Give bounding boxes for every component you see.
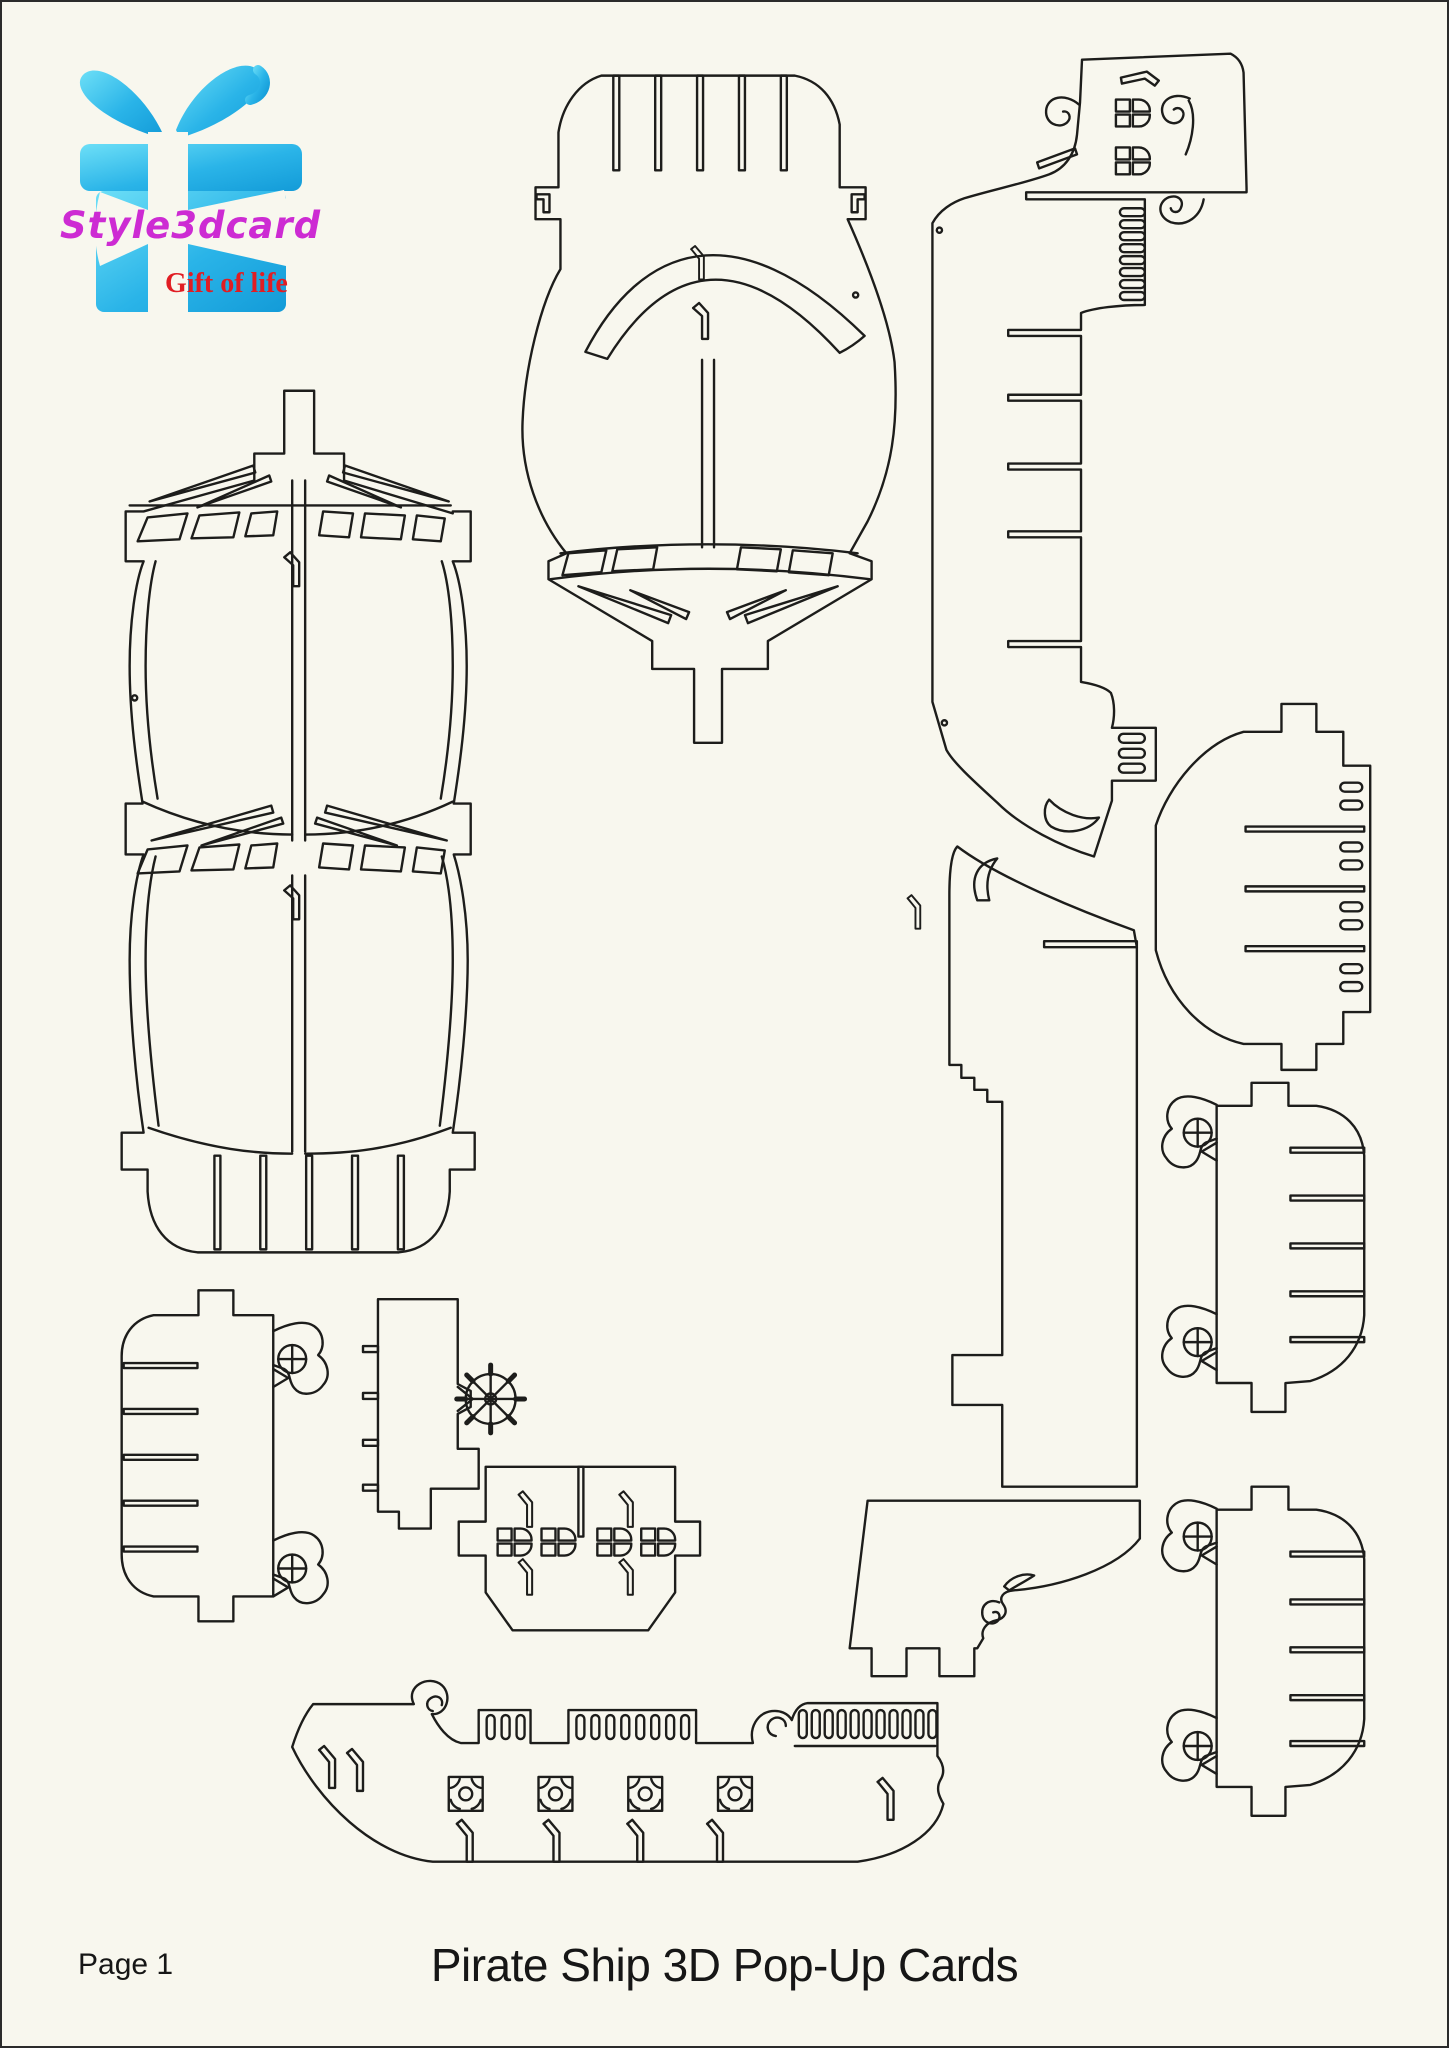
piece-stern-castle-side bbox=[932, 54, 1246, 857]
piece-gun-deck-right-upper bbox=[1162, 1083, 1364, 1412]
piece-hull-profile-strip bbox=[907, 846, 1136, 1486]
cut-pattern-canvas bbox=[2, 2, 1447, 2046]
piece-gun-deck-left bbox=[122, 1290, 328, 1621]
piece-hull-side-railing bbox=[292, 1681, 943, 1862]
piece-keel-strip-wheel bbox=[363, 1299, 525, 1528]
piece-gun-deck-right-lower bbox=[1162, 1487, 1364, 1816]
piece-deck-panel bbox=[1156, 704, 1370, 1070]
sheet-title: Pirate Ship 3D Pop-Up Cards bbox=[2, 1938, 1447, 1992]
piece-cabin-window-panel bbox=[459, 1467, 700, 1631]
piece-sail-fore bbox=[522, 76, 895, 743]
helm-wheel-icon bbox=[457, 1365, 525, 1433]
pattern-sheet-page: Style3dcard Gift of life bbox=[0, 0, 1449, 2048]
piece-bow-quarter-panel bbox=[850, 1501, 1140, 1677]
piece-sail-main-double bbox=[122, 391, 475, 1253]
